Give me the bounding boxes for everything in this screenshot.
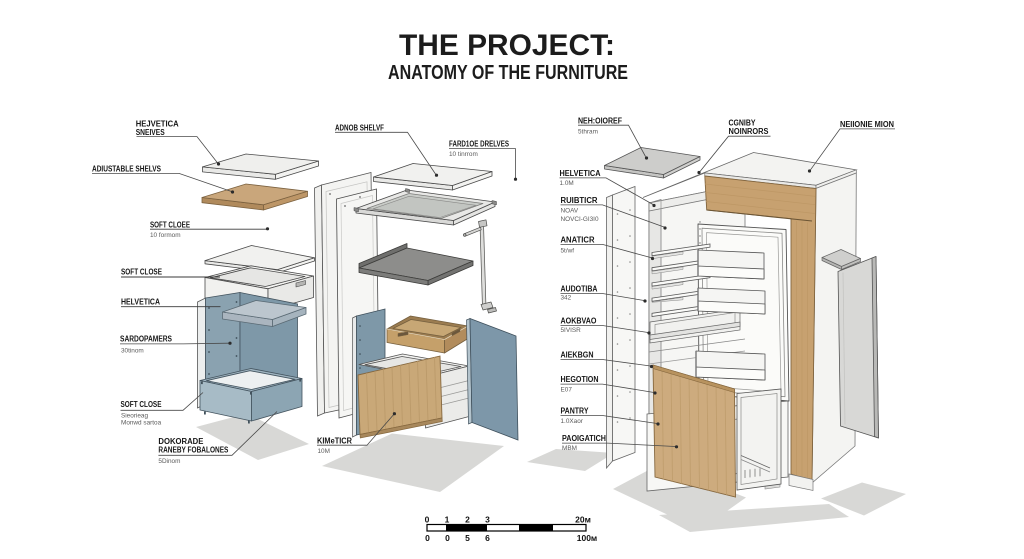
svg-text:NOAV: NOAV [561, 208, 579, 215]
svg-text:30tinom: 30tinom [121, 348, 144, 355]
svg-text:HELVETICA: HELVETICA [121, 298, 160, 307]
svg-text:1.0Xaor: 1.0Xaor [561, 418, 584, 425]
svg-text:AOKBVAO: AOKBVAO [561, 317, 597, 326]
svg-text:PANTRY: PANTRY [561, 407, 590, 416]
svg-text:ANATICR: ANATICR [561, 236, 595, 245]
svg-text:0: 0 [445, 533, 450, 543]
svg-text:5thram: 5thram [578, 129, 598, 136]
svg-text:ADIUSTABLE SHELVS: ADIUSTABLE SHELVS [92, 165, 161, 174]
svg-text:6: 6 [485, 533, 490, 543]
svg-text:ADNOB SHELVF: ADNOB SHELVF [335, 124, 384, 133]
svg-text:FARD1OE DRELVES: FARD1OE DRELVES [449, 139, 509, 148]
svg-text:Sieorieag: Sieorieag [121, 413, 148, 420]
svg-text:HELVETICA: HELVETICA [560, 169, 601, 178]
svg-text:RANEBY FOBALONES: RANEBY FOBALONES [158, 445, 228, 454]
svg-text:THE PROJECT:: THE PROJECT: [399, 29, 615, 62]
svg-text:SOFT CLOEE: SOFT CLOEE [150, 220, 190, 229]
svg-text:E07: E07 [561, 387, 573, 394]
svg-text:ANATOMY OF THE FURNITURE: ANATOMY OF THE FURNITURE [388, 62, 628, 84]
svg-text:SNEIVES: SNEIVES [136, 128, 165, 137]
svg-text:342: 342 [561, 295, 572, 302]
svg-text:10 tinrrom: 10 tinrrom [449, 151, 478, 158]
svg-text:0: 0 [425, 515, 430, 525]
svg-text:RUIBTICR: RUIBTICR [561, 196, 598, 205]
svg-text:SARDOPAMERS: SARDOPAMERS [120, 335, 172, 344]
svg-text:5IVISR: 5IVISR [561, 327, 582, 334]
svg-text:KIMeTICR: KIMeTICR [317, 436, 352, 445]
svg-text:AIEKBGN: AIEKBGN [561, 351, 594, 360]
svg-text:Monwd sartoa: Monwd sartoa [121, 420, 162, 427]
svg-text:1: 1 [445, 515, 450, 525]
svg-text:NOVCI-GI3I0: NOVCI-GI3I0 [561, 216, 599, 223]
svg-text:5Dinom: 5Dinom [158, 458, 180, 465]
svg-text:SOFT CLOSE: SOFT CLOSE [121, 268, 162, 277]
svg-text:5t/wf: 5t/wf [561, 247, 575, 254]
svg-text:NOINRORS: NOINRORS [729, 127, 769, 136]
svg-text:10M: 10M [318, 448, 330, 455]
svg-text:5: 5 [465, 533, 470, 543]
svg-text:NEIIONIE MION: NEIIONIE MION [840, 120, 894, 129]
svg-text:SOFT CLOSE: SOFT CLOSE [121, 400, 162, 409]
svg-text:PAOIGATICH: PAOIGATICH [562, 434, 606, 443]
svg-text:3: 3 [485, 515, 490, 525]
svg-text:NEH:OIOREF: NEH:OIOREF [578, 116, 622, 125]
svg-text:100м: 100м [577, 533, 597, 543]
svg-text:HEGOTION: HEGOTION [561, 375, 599, 384]
svg-text:20м: 20м [575, 515, 591, 525]
svg-text:AUDOTIBA: AUDOTIBA [561, 285, 598, 294]
svg-text:10 formom: 10 formom [150, 232, 181, 239]
svg-text:2: 2 [465, 515, 470, 525]
svg-text:0: 0 [425, 533, 430, 543]
svg-text:MBM: MBM [562, 445, 577, 452]
svg-text:1.0M: 1.0M [560, 180, 574, 187]
